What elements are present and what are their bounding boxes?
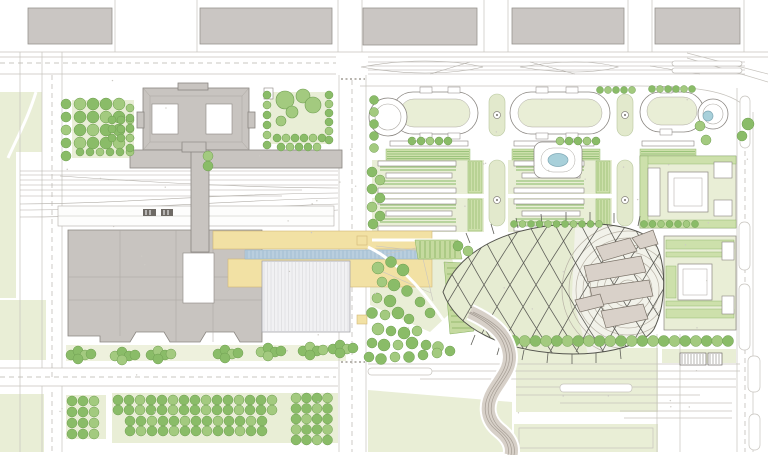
hedge-scallop bbox=[562, 336, 573, 347]
tree bbox=[126, 124, 134, 132]
tree bbox=[233, 348, 243, 358]
tree bbox=[370, 132, 379, 141]
tree bbox=[574, 137, 582, 145]
tree bbox=[158, 416, 168, 426]
tree bbox=[444, 137, 452, 145]
traffic-island bbox=[749, 414, 760, 450]
tree bbox=[325, 127, 333, 135]
tree bbox=[267, 395, 277, 405]
courtyard bbox=[206, 104, 232, 134]
tree bbox=[277, 143, 285, 151]
hedge-scallop bbox=[519, 336, 530, 347]
tree bbox=[325, 118, 333, 126]
speck bbox=[287, 220, 288, 221]
tree bbox=[67, 407, 77, 417]
tree bbox=[425, 308, 435, 318]
tree bbox=[404, 314, 414, 324]
hedge-scallop bbox=[648, 336, 659, 347]
tree bbox=[234, 405, 244, 415]
tree bbox=[665, 86, 672, 93]
tree bbox=[323, 393, 333, 403]
hedge-scallop bbox=[701, 336, 712, 347]
tree bbox=[376, 354, 387, 365]
tree bbox=[368, 219, 378, 229]
tree bbox=[511, 221, 518, 228]
tree bbox=[621, 87, 628, 94]
speck bbox=[534, 165, 535, 166]
tree bbox=[86, 148, 94, 156]
tree bbox=[370, 96, 379, 105]
tree bbox=[375, 193, 385, 203]
tree bbox=[158, 426, 168, 436]
tree bbox=[367, 202, 377, 212]
large-tree bbox=[286, 106, 298, 118]
tree bbox=[212, 395, 222, 405]
ring-wing-tab bbox=[536, 87, 548, 93]
station-building bbox=[130, 150, 342, 168]
speck bbox=[580, 275, 581, 276]
tree bbox=[323, 404, 333, 414]
tree bbox=[166, 349, 176, 359]
garden-bar-building bbox=[378, 188, 456, 193]
city-block bbox=[512, 8, 624, 44]
fountain-dot bbox=[496, 199, 498, 201]
tree bbox=[256, 395, 266, 405]
tree bbox=[89, 429, 99, 439]
speck bbox=[670, 406, 671, 407]
tree bbox=[421, 340, 431, 350]
speck bbox=[496, 131, 497, 132]
hedge-scallop bbox=[626, 336, 637, 347]
tree bbox=[325, 136, 333, 144]
traffic-island bbox=[739, 284, 750, 350]
tree bbox=[117, 125, 125, 133]
tree bbox=[168, 395, 178, 405]
fountain-dot bbox=[624, 114, 626, 116]
tree bbox=[67, 429, 77, 439]
tree bbox=[597, 87, 604, 94]
tree bbox=[78, 407, 88, 417]
ring-building-court bbox=[647, 97, 697, 125]
tree bbox=[291, 435, 301, 445]
tree bbox=[312, 425, 322, 435]
site-plan-svg bbox=[0, 0, 768, 455]
oval-pond bbox=[548, 154, 568, 167]
tree bbox=[291, 414, 301, 424]
speck bbox=[503, 287, 504, 288]
tree bbox=[202, 416, 212, 426]
tree bbox=[246, 416, 256, 426]
tree bbox=[257, 426, 267, 436]
tree bbox=[108, 116, 116, 124]
tree bbox=[87, 137, 99, 149]
hedge-scallop bbox=[723, 336, 734, 347]
tree bbox=[592, 137, 600, 145]
tree bbox=[689, 86, 696, 93]
tree bbox=[562, 221, 569, 228]
tree bbox=[202, 426, 212, 436]
tree bbox=[136, 426, 146, 436]
large-tree bbox=[305, 97, 321, 113]
g3-bar bbox=[648, 168, 660, 216]
tree bbox=[323, 435, 333, 445]
tree bbox=[130, 350, 140, 360]
tree bbox=[126, 134, 134, 142]
speck bbox=[689, 406, 690, 407]
tree bbox=[267, 405, 277, 415]
speck bbox=[571, 255, 572, 256]
tram-platform bbox=[368, 368, 432, 375]
tree bbox=[96, 148, 104, 156]
tree bbox=[375, 175, 385, 185]
speck bbox=[708, 222, 709, 223]
hedge-scallop bbox=[583, 336, 594, 347]
tree bbox=[117, 116, 125, 124]
east-complex-band bbox=[666, 301, 724, 306]
speck bbox=[637, 199, 638, 200]
tree bbox=[445, 346, 455, 356]
tree bbox=[370, 120, 379, 129]
tree bbox=[463, 246, 473, 256]
tree bbox=[302, 393, 312, 403]
garden-bar-building bbox=[514, 188, 584, 193]
tree bbox=[191, 426, 201, 436]
fountain-dot bbox=[496, 114, 498, 116]
garden-bar-building bbox=[378, 199, 456, 204]
tree bbox=[61, 99, 71, 109]
tree bbox=[418, 350, 428, 360]
speck bbox=[355, 185, 356, 186]
speck bbox=[464, 206, 465, 207]
tree bbox=[426, 137, 434, 145]
tree bbox=[61, 112, 71, 122]
hedge-scallop bbox=[530, 336, 541, 347]
tree bbox=[657, 86, 664, 93]
tree bbox=[124, 395, 134, 405]
garden-bar-building bbox=[386, 211, 452, 216]
tree bbox=[583, 137, 591, 145]
tree bbox=[117, 355, 127, 365]
speck bbox=[61, 408, 62, 409]
traffic-island bbox=[748, 356, 760, 392]
g3-wing bbox=[714, 200, 732, 216]
tree bbox=[108, 125, 116, 133]
ring-building-court bbox=[518, 99, 602, 127]
ring-wing-tab bbox=[448, 87, 460, 93]
traffic-island bbox=[739, 222, 750, 270]
tree bbox=[613, 87, 620, 94]
tree bbox=[74, 111, 86, 123]
station-building bbox=[248, 112, 255, 128]
tree bbox=[384, 295, 396, 307]
speck bbox=[259, 155, 260, 156]
tree bbox=[124, 405, 134, 415]
east-complex-wing bbox=[722, 242, 734, 260]
glazed-roof bbox=[245, 250, 432, 259]
tree bbox=[126, 114, 134, 122]
tree bbox=[201, 395, 211, 405]
tree bbox=[117, 134, 125, 142]
tree bbox=[367, 184, 377, 194]
hedge-scallop bbox=[573, 336, 584, 347]
tree bbox=[113, 395, 123, 405]
speck bbox=[141, 255, 142, 256]
tree bbox=[737, 131, 747, 141]
tree bbox=[367, 338, 377, 348]
tree bbox=[415, 297, 425, 307]
tree bbox=[78, 396, 88, 406]
tree bbox=[300, 134, 308, 142]
tree bbox=[146, 395, 156, 405]
tree bbox=[683, 221, 690, 228]
tree bbox=[113, 405, 123, 415]
speck bbox=[375, 293, 376, 294]
tree bbox=[312, 435, 322, 445]
tree bbox=[545, 221, 552, 228]
tree bbox=[325, 100, 333, 108]
tree bbox=[335, 348, 345, 358]
tree bbox=[323, 414, 333, 424]
tree bbox=[213, 426, 223, 436]
tree bbox=[309, 134, 317, 142]
ring-wing-tab bbox=[566, 87, 578, 93]
tree bbox=[392, 307, 404, 319]
speck bbox=[668, 164, 669, 165]
tree bbox=[587, 221, 594, 228]
tree bbox=[323, 425, 333, 435]
tree bbox=[692, 221, 699, 228]
east-complex-wing bbox=[722, 296, 734, 314]
tree bbox=[302, 435, 312, 445]
canopy-support-tick bbox=[466, 233, 470, 243]
tree bbox=[318, 134, 326, 142]
hedge-scallop bbox=[551, 336, 562, 347]
speck bbox=[112, 80, 113, 81]
tree bbox=[528, 221, 535, 228]
tree bbox=[605, 87, 612, 94]
hedge-row-layer bbox=[509, 336, 734, 347]
tree bbox=[157, 395, 167, 405]
tree bbox=[234, 395, 244, 405]
tree bbox=[203, 151, 213, 161]
tree bbox=[397, 264, 409, 276]
city-block bbox=[200, 8, 332, 44]
tree bbox=[408, 137, 416, 145]
speck bbox=[144, 264, 145, 265]
tree bbox=[629, 87, 636, 94]
tree bbox=[220, 353, 230, 363]
speck bbox=[415, 139, 416, 140]
tree bbox=[224, 426, 234, 436]
entrance-structure bbox=[680, 353, 706, 365]
tree bbox=[295, 143, 303, 151]
tree bbox=[276, 346, 286, 356]
tree bbox=[67, 418, 77, 428]
tree bbox=[673, 86, 680, 93]
tree bbox=[681, 86, 688, 93]
speck bbox=[339, 181, 340, 182]
tree bbox=[87, 98, 99, 110]
tree bbox=[263, 131, 271, 139]
tree bbox=[398, 327, 410, 339]
tree bbox=[302, 414, 312, 424]
tree bbox=[348, 343, 358, 353]
platform-canopy bbox=[357, 315, 367, 324]
tree bbox=[570, 221, 577, 228]
tree bbox=[291, 393, 301, 403]
tree bbox=[318, 345, 328, 355]
tree bbox=[273, 134, 281, 142]
tree bbox=[435, 137, 443, 145]
hedge-scallop bbox=[658, 336, 669, 347]
speck bbox=[623, 166, 624, 167]
speck bbox=[686, 99, 687, 100]
rail-platform bbox=[672, 61, 742, 66]
hedge-scallop bbox=[637, 336, 648, 347]
tree bbox=[67, 396, 77, 406]
speck bbox=[655, 308, 656, 309]
tree bbox=[179, 405, 189, 415]
tree bbox=[393, 340, 403, 350]
garden-bar-building bbox=[378, 226, 456, 231]
speck bbox=[165, 186, 166, 187]
tree bbox=[367, 167, 377, 177]
tree bbox=[675, 221, 682, 228]
tree bbox=[565, 137, 573, 145]
tree bbox=[263, 351, 273, 361]
tree bbox=[108, 134, 116, 142]
tree bbox=[74, 98, 86, 110]
tree bbox=[553, 221, 560, 228]
tree bbox=[312, 393, 322, 403]
tree bbox=[375, 211, 385, 221]
hedge-scallop bbox=[594, 336, 605, 347]
tree bbox=[86, 349, 96, 359]
speck bbox=[136, 374, 137, 375]
speck bbox=[289, 271, 290, 272]
tree bbox=[372, 293, 382, 303]
courtyard bbox=[152, 104, 178, 134]
tree bbox=[453, 241, 463, 251]
hedge-scallop bbox=[616, 336, 627, 347]
speck bbox=[100, 178, 101, 179]
site-plan bbox=[0, 0, 768, 455]
speck bbox=[317, 401, 318, 402]
tree bbox=[701, 135, 711, 145]
tree bbox=[256, 405, 266, 415]
city-block bbox=[363, 8, 477, 45]
station-building bbox=[178, 83, 208, 90]
g3-border-band bbox=[640, 156, 648, 228]
rail-track-curve bbox=[20, 193, 338, 204]
tree bbox=[100, 98, 112, 110]
tree bbox=[87, 124, 99, 136]
tree bbox=[245, 405, 255, 415]
tree bbox=[312, 414, 322, 424]
hedge-scallop bbox=[605, 336, 616, 347]
tree bbox=[313, 143, 321, 151]
tree bbox=[364, 352, 374, 362]
tree bbox=[76, 148, 84, 156]
tree bbox=[519, 221, 526, 228]
tree bbox=[191, 416, 201, 426]
mall-median bbox=[617, 160, 633, 226]
speck bbox=[696, 327, 697, 328]
tram-platform bbox=[560, 384, 632, 392]
tree bbox=[536, 221, 543, 228]
speck bbox=[696, 370, 697, 371]
tree bbox=[113, 98, 125, 110]
tree bbox=[291, 134, 299, 142]
speck bbox=[59, 411, 60, 412]
tree bbox=[649, 86, 656, 93]
tree bbox=[305, 350, 315, 360]
speck bbox=[287, 350, 288, 351]
tree bbox=[78, 418, 88, 428]
speck bbox=[154, 411, 155, 412]
tree bbox=[106, 148, 114, 156]
tree bbox=[180, 426, 190, 436]
tree bbox=[61, 138, 71, 148]
tree bbox=[386, 257, 397, 268]
garden-bar-building bbox=[386, 173, 452, 178]
speck bbox=[350, 149, 351, 150]
tree bbox=[153, 354, 163, 364]
tree bbox=[302, 404, 312, 414]
tree bbox=[388, 279, 400, 291]
tree bbox=[390, 352, 400, 362]
speck bbox=[584, 178, 585, 179]
lawn bbox=[0, 394, 44, 452]
speck bbox=[531, 248, 532, 249]
tree bbox=[325, 91, 333, 99]
large-tree bbox=[276, 116, 286, 126]
g3-wing bbox=[714, 162, 732, 178]
tree bbox=[282, 134, 290, 142]
tree bbox=[223, 395, 233, 405]
tree bbox=[742, 118, 754, 130]
tree bbox=[666, 221, 673, 228]
tree bbox=[432, 348, 442, 358]
tree bbox=[147, 416, 157, 426]
tree bbox=[370, 144, 379, 153]
tree bbox=[312, 404, 322, 414]
rail-platform bbox=[672, 68, 742, 73]
tree bbox=[116, 148, 124, 156]
tree bbox=[370, 108, 379, 117]
tree bbox=[302, 425, 312, 435]
garden-bar-building bbox=[514, 199, 584, 204]
speck bbox=[165, 107, 166, 108]
tree bbox=[263, 121, 271, 129]
hedge-scallop bbox=[712, 336, 723, 347]
speck bbox=[548, 170, 549, 171]
tree bbox=[372, 262, 384, 274]
tree bbox=[257, 416, 267, 426]
tree bbox=[263, 141, 271, 149]
city-block bbox=[28, 8, 112, 44]
hedge-scallop bbox=[669, 336, 680, 347]
speck bbox=[483, 163, 484, 164]
speck bbox=[608, 395, 609, 396]
tree bbox=[147, 426, 157, 436]
tree bbox=[213, 416, 223, 426]
tree bbox=[212, 405, 222, 415]
speck bbox=[518, 412, 519, 413]
tree bbox=[125, 416, 135, 426]
speck bbox=[446, 262, 447, 263]
tree bbox=[179, 395, 189, 405]
